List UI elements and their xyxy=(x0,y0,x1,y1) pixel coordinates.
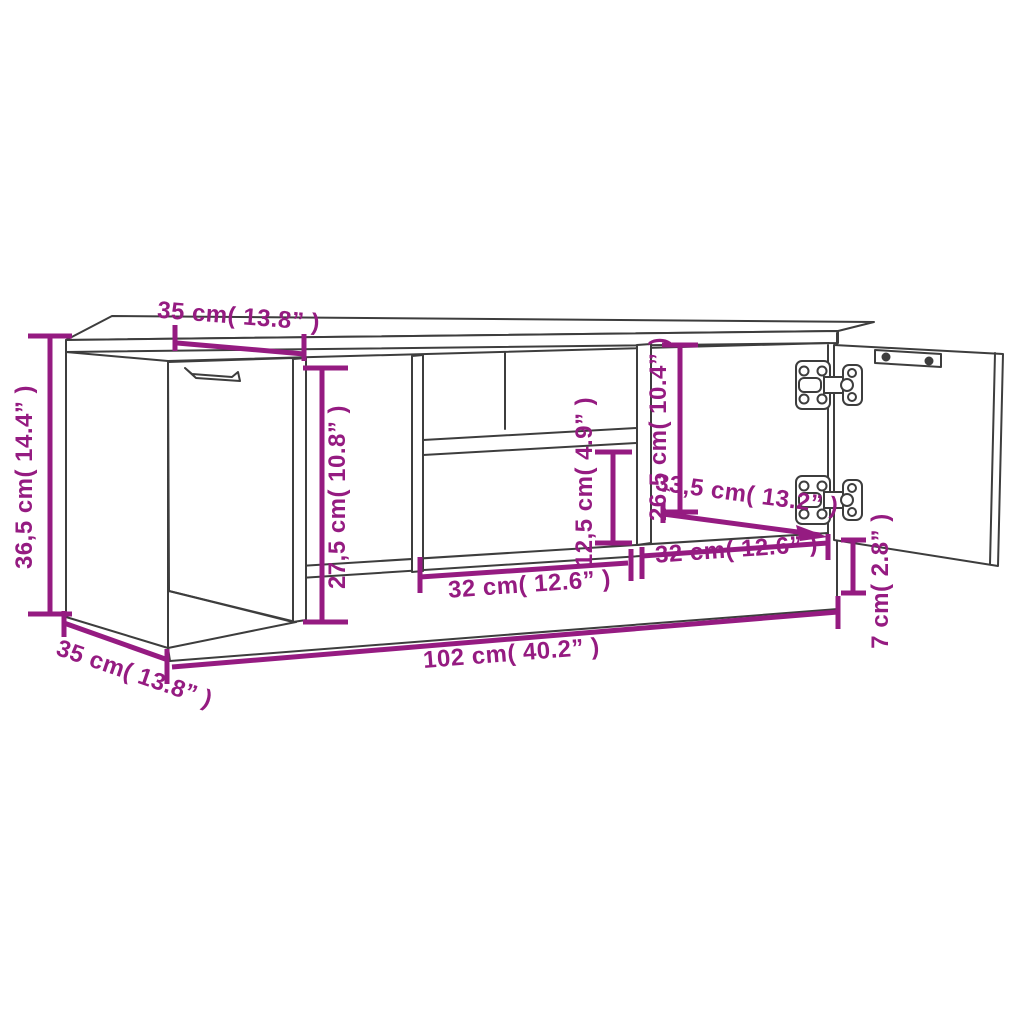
dimension-label-height: 36,5 cm( 14.4” ) xyxy=(11,385,38,569)
left-door-plinth-edge xyxy=(168,622,296,648)
dimension-label-right-width: 32 cm( 12.6” ) xyxy=(654,530,819,568)
product-dimension-image: 35 cm( 13.8” ) 36,5 cm( 14.4” ) 27,5 cm(… xyxy=(0,0,1024,1024)
cabinet-left-side-panel xyxy=(66,352,168,648)
handle-screw-icon xyxy=(883,354,890,361)
left-door-panel xyxy=(168,358,293,622)
dim-separator-ticks xyxy=(631,547,642,581)
divider-panel-2 xyxy=(412,355,423,572)
handle-screw-icon xyxy=(926,358,933,365)
dimension-label-interior-height: 27,5 cm( 10.8” ) xyxy=(324,405,351,589)
cabinet-dimension-diagram: 35 cm( 13.8” ) 36,5 cm( 14.4” ) 27,5 cm(… xyxy=(0,0,1024,1024)
divider-panel-1 xyxy=(293,358,306,622)
cabinet-outline xyxy=(66,316,1003,661)
dimension-label-plinth: 7 cm( 2.8” ) xyxy=(867,513,894,648)
hinge-icon-top xyxy=(796,361,862,409)
dimension-label-shelf-gap: 12,5 cm( 4.9” ) xyxy=(571,397,598,567)
shelf-top-edge xyxy=(423,428,637,440)
